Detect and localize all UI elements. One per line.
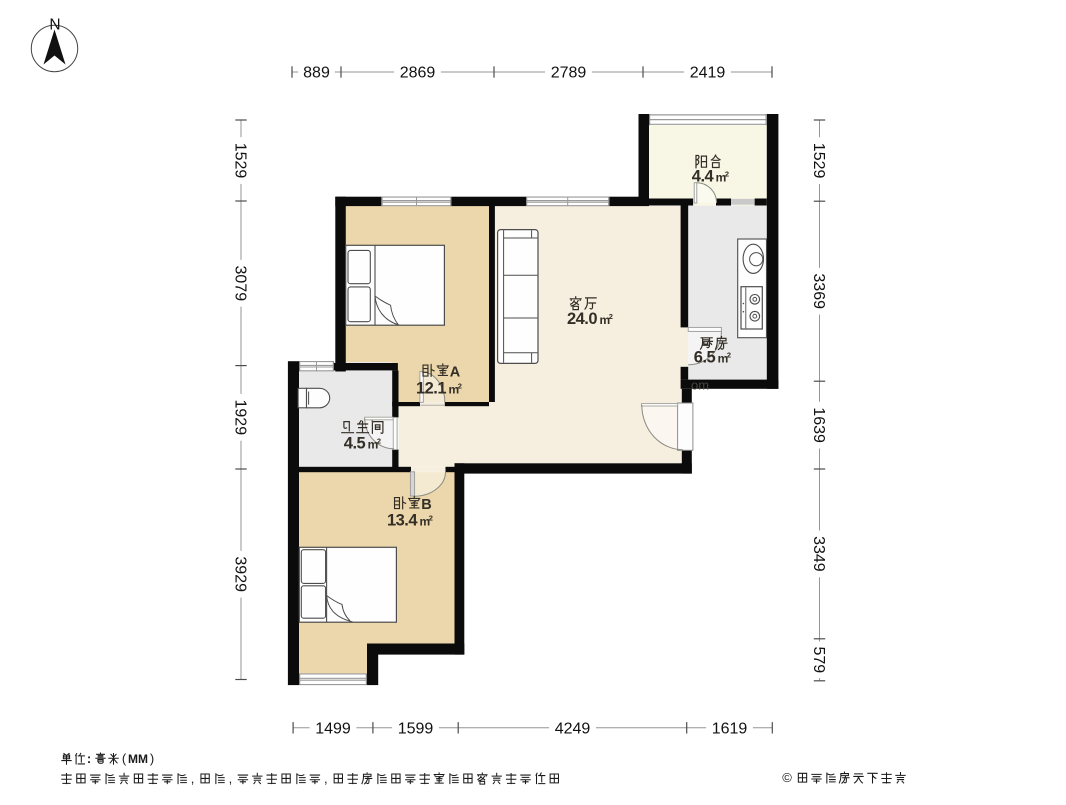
svg-text:4249: 4249 <box>555 720 591 737</box>
svg-text:): ) <box>150 751 154 766</box>
svg-text:(: ( <box>122 751 127 766</box>
svg-text:3369: 3369 <box>810 273 827 309</box>
svg-text:889: 889 <box>303 65 330 82</box>
svg-text:4.4: 4.4 <box>692 168 715 186</box>
svg-text:3349: 3349 <box>810 536 827 572</box>
svg-text:2: 2 <box>725 170 729 179</box>
svg-text:N: N <box>49 17 60 34</box>
svg-text:579: 579 <box>810 646 827 673</box>
svg-text:2: 2 <box>458 382 462 391</box>
svg-text:3079: 3079 <box>232 266 249 302</box>
svg-text:,: , <box>191 771 195 786</box>
svg-text:1929: 1929 <box>232 400 249 436</box>
svg-text:6.5: 6.5 <box>694 349 716 367</box>
svg-text:2: 2 <box>609 312 613 321</box>
svg-text:2: 2 <box>377 437 381 446</box>
svg-text:24.0: 24.0 <box>567 310 597 328</box>
svg-text:12.1: 12.1 <box>416 380 446 398</box>
svg-text:3929: 3929 <box>232 556 249 592</box>
svg-text::: : <box>87 751 91 766</box>
svg-text:B: B <box>421 497 431 513</box>
svg-text:1529: 1529 <box>810 143 827 179</box>
svg-text:1619: 1619 <box>712 720 748 737</box>
svg-text:1499: 1499 <box>315 720 351 737</box>
svg-text:om: om <box>691 378 709 393</box>
svg-text:13.4: 13.4 <box>387 512 418 530</box>
svg-text:A: A <box>450 365 461 381</box>
svg-text:2789: 2789 <box>551 65 587 82</box>
svg-text:2: 2 <box>727 351 731 360</box>
svg-text:,: , <box>229 771 233 786</box>
svg-text:MM: MM <box>128 752 148 766</box>
svg-text:2: 2 <box>429 514 433 523</box>
svg-text:4.5: 4.5 <box>344 435 366 453</box>
svg-text:2419: 2419 <box>690 65 726 82</box>
svg-text:©: © <box>782 770 792 785</box>
svg-text:2869: 2869 <box>400 65 436 82</box>
svg-text:1529: 1529 <box>232 143 249 179</box>
svg-text:,: , <box>324 771 328 786</box>
svg-text:1599: 1599 <box>398 720 434 737</box>
svg-text:1639: 1639 <box>810 407 827 443</box>
